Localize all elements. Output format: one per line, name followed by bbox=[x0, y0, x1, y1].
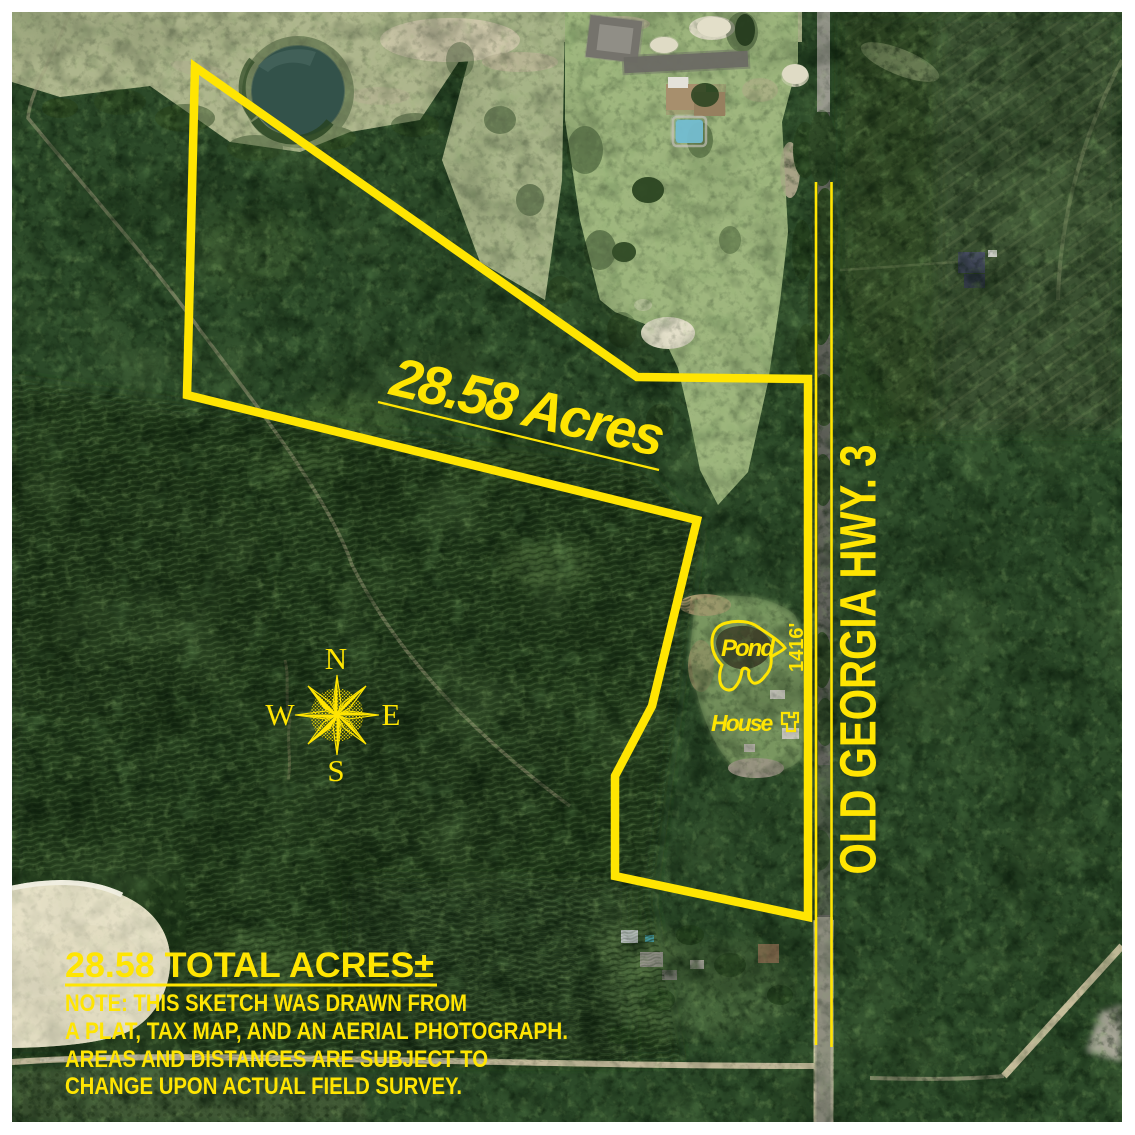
svg-text:AREAS AND DISTANCES ARE SUBJEC: AREAS AND DISTANCES ARE SUBJECT TO bbox=[65, 1046, 488, 1073]
svg-text:W: W bbox=[265, 697, 295, 732]
svg-text:NOTE: THIS SKETCH WAS DRAWN FR: NOTE: THIS SKETCH WAS DRAWN FROM bbox=[65, 990, 467, 1017]
svg-text:E: E bbox=[382, 697, 401, 732]
svg-text:S: S bbox=[327, 753, 344, 788]
svg-text:OLD GEORGIA HWY. 3: OLD GEORGIA HWY. 3 bbox=[830, 444, 887, 874]
svg-text:N: N bbox=[325, 641, 347, 676]
svg-text:1416': 1416' bbox=[786, 623, 808, 672]
svg-text:28.58 TOTAL ACRES±: 28.58 TOTAL ACRES± bbox=[65, 946, 434, 985]
svg-text:A PLAT, TAX MAP, AND AN AERIAL: A PLAT, TAX MAP, AND AN AERIAL PHOTOGRAP… bbox=[65, 1018, 568, 1045]
svg-text:Pond: Pond bbox=[721, 635, 776, 662]
svg-text:CHANGE UPON ACTUAL FIELD SURVE: CHANGE UPON ACTUAL FIELD SURVEY. bbox=[65, 1073, 462, 1100]
svg-text:House: House bbox=[711, 710, 774, 736]
